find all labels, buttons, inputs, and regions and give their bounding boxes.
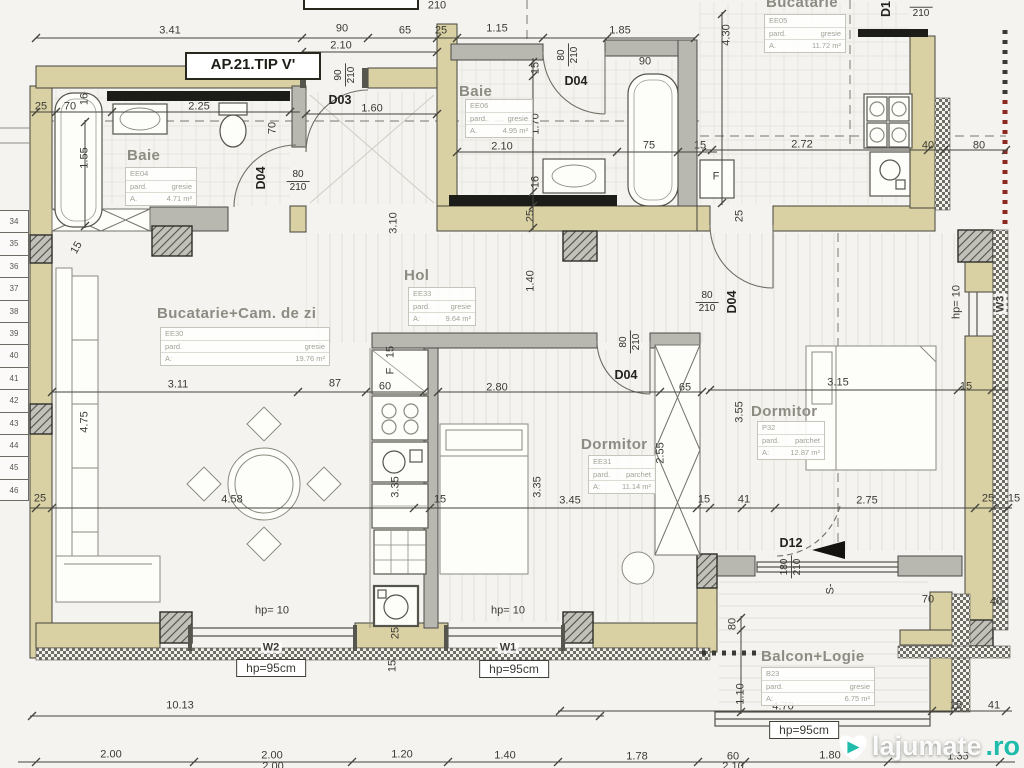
staircase-steps: 34353637383940414243444546	[0, 210, 29, 501]
stair-step-44: 44	[0, 434, 28, 456]
stair-step-42: 42	[0, 389, 28, 411]
floor-plan-drawing	[0, 0, 1024, 768]
stair-step-45: 45	[0, 456, 28, 478]
watermark: lajumate.ro	[838, 731, 1020, 762]
stair-step-43: 43	[0, 412, 28, 434]
watermark-logo-icon	[838, 733, 868, 761]
stair-step-36: 36	[0, 255, 28, 277]
watermark-tld: .ro	[985, 731, 1020, 762]
stair-step-37: 37	[0, 277, 28, 299]
floor-plan: AP.21.TIP V' 34353637383940414243444546 …	[0, 0, 1024, 768]
stair-step-40: 40	[0, 344, 28, 366]
neighbor-title-cutoff	[303, 0, 419, 10]
stair-step-35: 35	[0, 232, 28, 254]
stair-step-39: 39	[0, 322, 28, 344]
watermark-name: lajumate	[872, 731, 982, 762]
stair-step-41: 41	[0, 367, 28, 389]
plan-title: AP.21.TIP V'	[185, 52, 321, 80]
stair-step-34: 34	[0, 210, 28, 232]
stair-step-46: 46	[0, 479, 28, 501]
stair-step-38: 38	[0, 300, 28, 322]
